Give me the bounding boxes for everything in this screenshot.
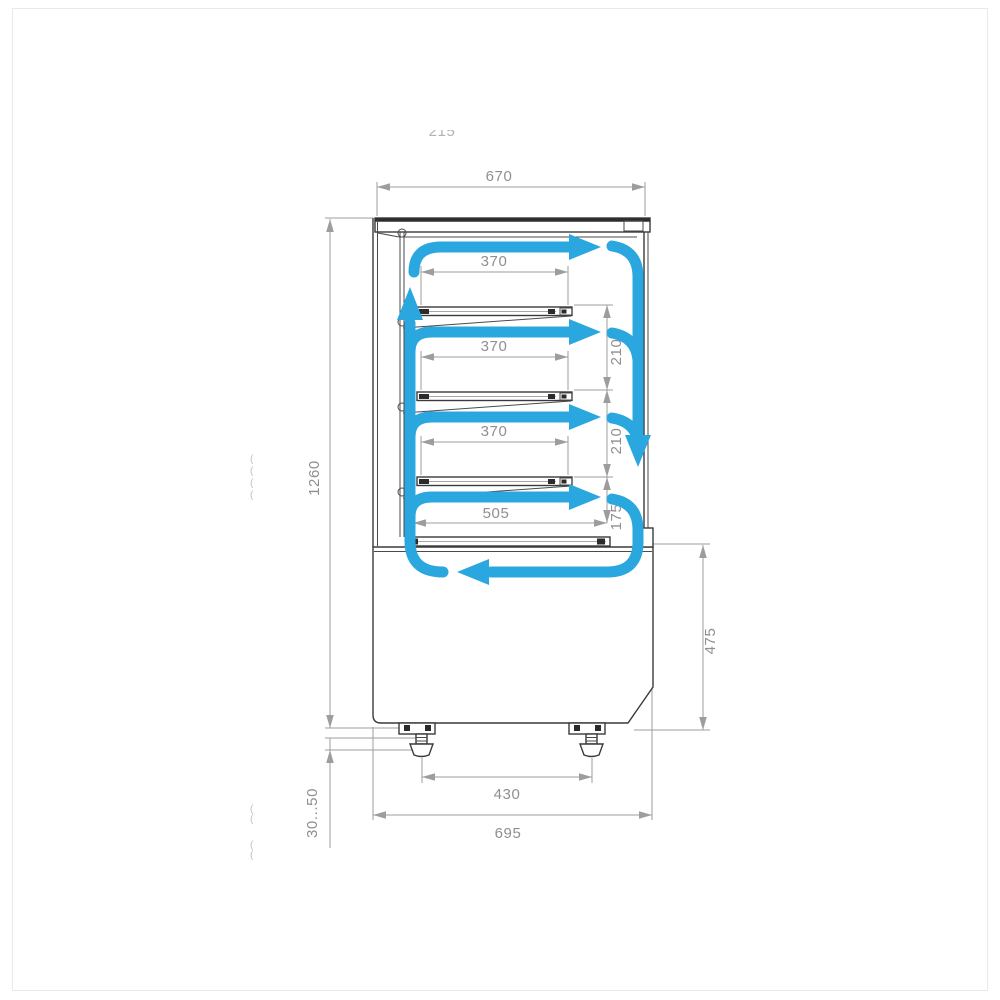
dimension-370-shelf1: 370 — [421, 253, 568, 305]
dim-label-210-upper: 210 — [608, 339, 625, 366]
dim-label-670: 670 — [486, 168, 513, 185]
dim-label-370-1: 370 — [481, 253, 508, 270]
airflow-left-channel — [410, 323, 443, 572]
dim-label-210-lower: 210 — [608, 428, 625, 455]
faded-top-partial: 215 — [429, 123, 456, 140]
faded-fragment: ( — [250, 454, 254, 465]
airflow-right-arrow-4 — [569, 484, 601, 510]
faded-fragment: ( — [250, 490, 254, 501]
dim-label-370-3: 370 — [481, 423, 508, 440]
faded-fragment: ( — [250, 814, 254, 825]
airflow-up-arrow — [397, 287, 423, 320]
dim-label-695: 695 — [495, 825, 522, 842]
dimension-370-shelf2: 370 — [421, 338, 568, 390]
dim-label-370-2: 370 — [481, 338, 508, 355]
faded-fragment: ( — [250, 478, 254, 489]
dimension-670-canopy-width: 670 — [377, 168, 645, 216]
display-case-diagram: 670 370 370 370 505 — [0, 0, 1000, 1000]
dim-label-475: 475 — [702, 628, 719, 655]
diagram-canvas: 670 370 370 370 505 — [0, 0, 1000, 1000]
faded-fragment: ( — [250, 466, 254, 477]
front-glass — [644, 232, 648, 529]
airflow — [397, 234, 651, 585]
dimension-430-feet-spacing: 430 — [422, 758, 592, 803]
shelf-2 — [403, 392, 572, 413]
airflow-right-arrow-3 — [569, 404, 601, 430]
foot-left — [399, 723, 435, 757]
faded-fragment: ( — [250, 850, 254, 861]
dimension-370-shelf3: 370 — [421, 423, 568, 475]
shelf-1 — [403, 307, 572, 328]
dimension-30-50-leveling: 30...50 — [304, 738, 420, 848]
dimension-505-deck-depth: 505 — [413, 505, 607, 534]
canopy — [375, 218, 650, 237]
left-wall — [373, 218, 406, 547]
airflow-down-arrow — [625, 435, 651, 467]
dim-label-1260: 1260 — [306, 460, 323, 496]
dim-label-505: 505 — [483, 505, 510, 522]
airflow-right-arrow-2 — [569, 319, 601, 345]
dim-label-30-50: 30...50 — [304, 788, 321, 838]
dim-label-430: 430 — [494, 786, 521, 803]
airflow-right-arrow-1 — [569, 234, 601, 260]
foot-right — [569, 723, 605, 757]
